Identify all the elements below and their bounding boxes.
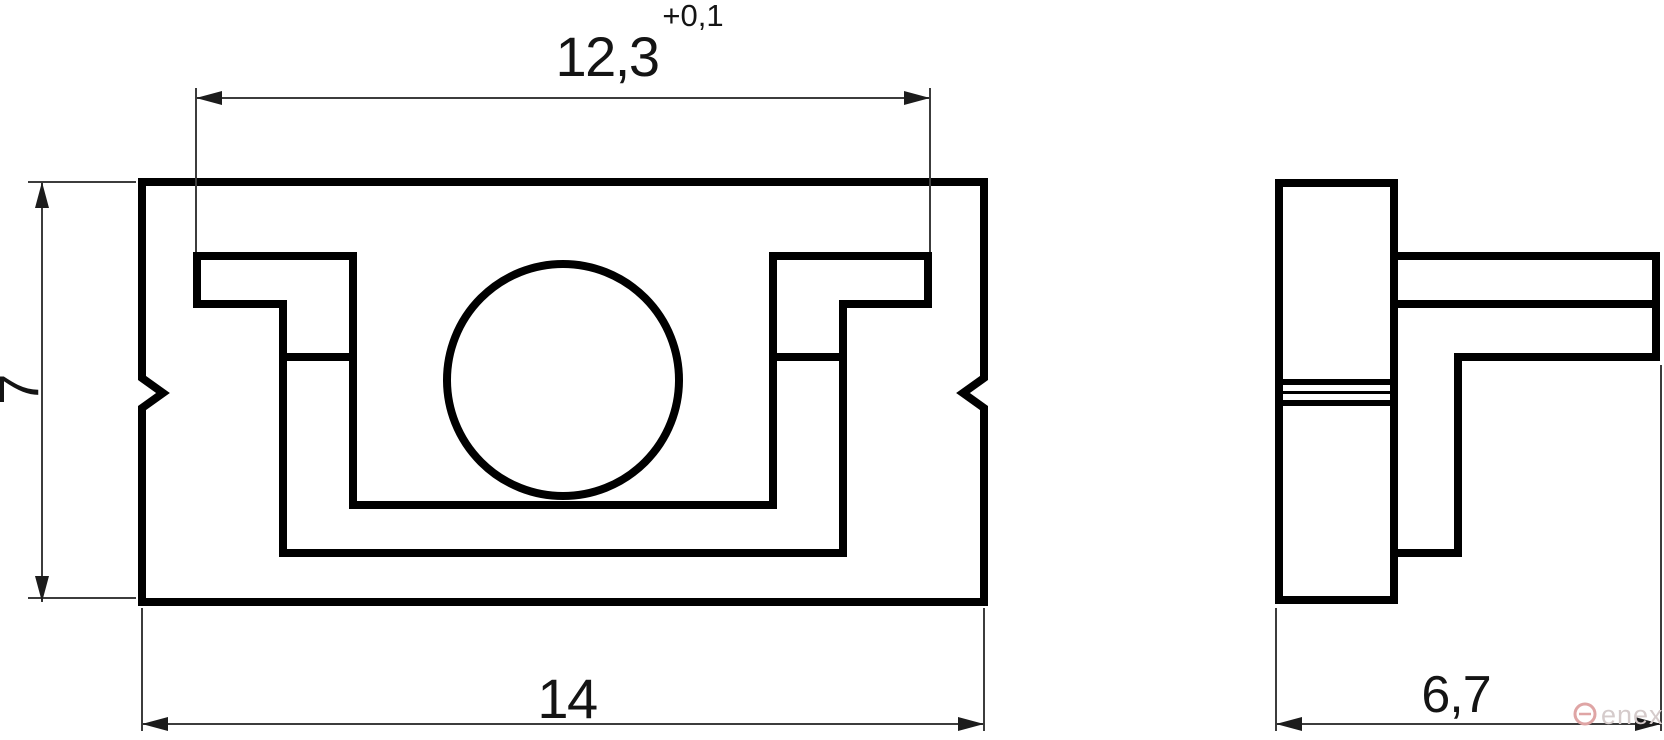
overall-width-value: 14 [537,667,597,730]
slot-width-tolerance: +0,1 [662,0,723,33]
dimension-overall-width-bottom: 14 [142,608,984,731]
front-view [142,182,984,602]
dimension-depth-side: 6,7 [1276,365,1661,731]
arrowhead-right [958,717,984,731]
arrowhead-right [904,91,930,105]
arrowhead-left [196,91,222,105]
slot-width-value: 12,3 [556,25,659,88]
dimension-slot-width-top: 12,3 +0,1 [196,0,930,252]
technical-drawing-canvas: 12,3 +0,1 7 14 6,7 enex [0,0,1664,740]
arrowhead-left [1276,717,1302,731]
screw-hole-circle [447,264,679,496]
watermark-text: enex [1601,700,1664,730]
front-channel-profile [197,256,928,553]
front-outer-outline [142,182,984,602]
arrowhead-left [142,717,168,731]
arrowhead-top [35,182,49,208]
dimension-height-left: 7 [0,182,136,602]
depth-value: 6,7 [1421,666,1490,724]
side-view [1279,183,1656,600]
height-value: 7 [0,375,50,405]
watermark: enex [1575,700,1664,730]
